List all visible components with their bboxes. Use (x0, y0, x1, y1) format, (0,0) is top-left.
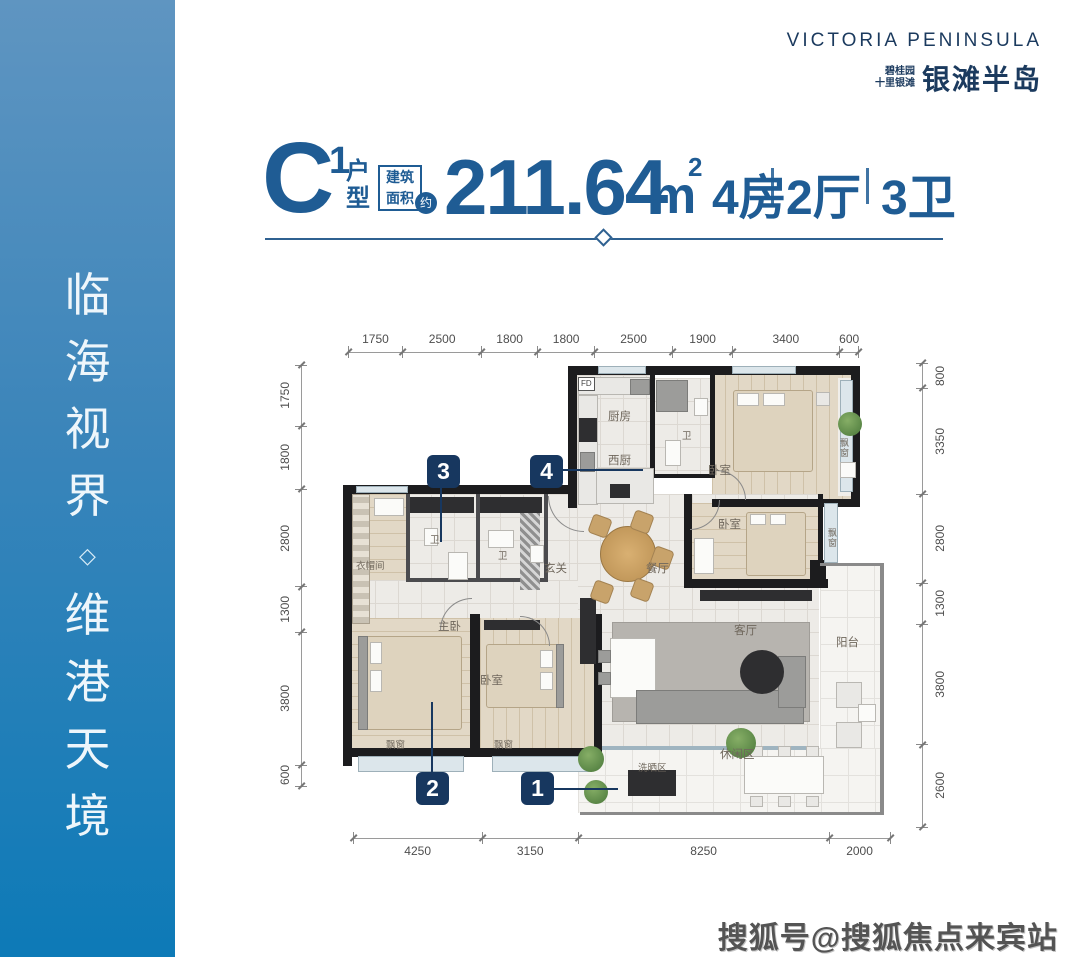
dim-rail-line (353, 838, 890, 839)
shower (656, 380, 688, 412)
window-closet (356, 486, 408, 493)
dim-value: 600 (277, 765, 293, 786)
dim-value: 8250 (578, 844, 829, 858)
room-label-bay-2: 飘窗 (826, 528, 839, 548)
dim-rail-line (301, 365, 302, 786)
desk (694, 538, 714, 574)
dim-value: 3800 (932, 624, 948, 744)
outdoor-chair (806, 746, 819, 757)
dim-value-text: 2800 (278, 525, 292, 552)
room-label-bedroom-1: 卧室 (708, 462, 731, 478)
dim-value-text: 1300 (278, 596, 292, 623)
dim-value: 3400 (732, 332, 839, 346)
pillow (540, 672, 553, 690)
dim-value: 1800 (277, 426, 293, 489)
dim-value-text: 2800 (933, 525, 947, 552)
dim-value: 3150 (482, 844, 578, 858)
dim-value: 1300 (932, 583, 948, 624)
room-label-leisure: 休闲区 (720, 746, 755, 762)
dim-value-text: 600 (278, 765, 292, 785)
pillow (763, 393, 785, 406)
balcony-railing (580, 812, 884, 815)
outdoor-chair (778, 796, 791, 807)
dim-value-text: 1800 (278, 444, 292, 471)
marker-3: 3 (427, 455, 460, 488)
balcony-railing (880, 563, 884, 815)
dim-value: 4250 (353, 844, 482, 858)
marker-2: 2 (416, 772, 449, 805)
leader-3 (440, 488, 442, 542)
room-label-balcony: 阳台 (836, 634, 859, 650)
coffee-table (740, 650, 784, 694)
room-label-bay-master: 飘窗 (386, 737, 405, 751)
wall-segment (343, 485, 352, 766)
room-label-west-kitchen: 西厨 (608, 452, 631, 468)
kitchen-counter (578, 395, 598, 505)
dim-value-text: 800 (933, 366, 947, 386)
wash-basin (530, 545, 544, 563)
cooktop (610, 484, 630, 498)
room-label-bath-2: 卫 (498, 548, 508, 562)
leader-1 (554, 788, 618, 790)
dim-value: 2800 (277, 489, 293, 587)
chair (598, 650, 611, 663)
dim-value: 1900 (673, 332, 733, 346)
plant (578, 746, 604, 772)
room-label-laundry: 洗晒区 (638, 760, 667, 774)
dim-value: 2600 (932, 745, 948, 827)
room-label-bath-top: 卫 (682, 428, 692, 442)
pillow (770, 514, 786, 525)
dim-rail-line (348, 352, 858, 353)
room-label-fd: FD (578, 377, 595, 391)
fridge (630, 379, 650, 395)
toilet (448, 552, 468, 580)
dim-value-text: 2600 (933, 772, 947, 799)
dim-value-text: 1750 (278, 382, 292, 409)
wall-segment (684, 579, 828, 588)
dim-value-text: 1300 (933, 590, 947, 617)
headboard (556, 644, 564, 708)
pillow (540, 650, 553, 668)
outdoor-table (744, 756, 824, 794)
dim-value-text: 3350 (933, 428, 947, 455)
room-label-closet: 衣帽间 (356, 558, 385, 572)
room-label-bath-3: 卫 (430, 532, 440, 546)
wall-segment (650, 375, 655, 478)
leader-4 (563, 469, 643, 471)
side-table (858, 704, 876, 722)
outdoor-chair (778, 746, 791, 757)
dim-value: 1800 (538, 332, 594, 346)
tv-console (700, 590, 812, 601)
dim-value: 3350 (932, 388, 948, 494)
room-label-bay-1: 飘窗 (838, 438, 851, 458)
dim-value: 600 (839, 332, 858, 346)
dim-value: 2000 (829, 844, 890, 858)
leader-2 (431, 702, 433, 772)
nightstand (816, 392, 830, 406)
plant (838, 412, 862, 436)
vanity (374, 498, 404, 516)
window-kitchen (598, 366, 646, 374)
room-label-bay-3: 飘窗 (494, 737, 513, 751)
room-label-dining: 餐厅 (646, 560, 669, 576)
wall-segment (654, 474, 712, 478)
dim-value: 1300 (277, 587, 293, 632)
room-label-bedroom-2: 卧室 (718, 516, 741, 532)
headboard (358, 636, 368, 730)
pillow (737, 393, 759, 406)
room-label-living: 客厅 (734, 622, 757, 638)
dim-value: 1750 (348, 332, 403, 346)
window-bedroom-1 (732, 366, 796, 374)
dim-value: 1800 (481, 332, 537, 346)
outdoor-chair (750, 796, 763, 807)
study-table (610, 638, 656, 698)
pillow (750, 514, 766, 525)
chair (598, 672, 611, 685)
dim-value-text: 3800 (278, 685, 292, 712)
bay-window-master (358, 756, 464, 772)
toilet (665, 440, 681, 466)
balcony-railing (820, 563, 882, 566)
watermark-text: 搜狐号@搜狐焦点来宾站 (718, 913, 1058, 957)
toilet (488, 530, 514, 548)
dim-value: 800 (932, 363, 948, 388)
plant (584, 780, 608, 804)
page: { "sidebar": { "chars": ["临","海","视","界"… (0, 0, 1080, 957)
bay-window-bedroom-3 (492, 756, 592, 772)
pillow (370, 642, 382, 664)
room-label-kitchen: 厨房 (608, 408, 631, 424)
stove (579, 418, 597, 442)
room-label-master: 主卧 (438, 618, 461, 634)
marker-1: 1 (521, 772, 554, 805)
room-label-bedroom-3: 卧室 (480, 672, 503, 688)
dim-value: 2500 (594, 332, 672, 346)
bay-stool (840, 462, 856, 478)
bath-cabinet (480, 497, 542, 513)
wash-basin (694, 398, 708, 416)
wall-segment (470, 614, 480, 757)
hall-cabinet (580, 598, 596, 664)
dim-rail-line (922, 363, 923, 827)
bath-cabinet (410, 497, 474, 513)
pillow (370, 670, 382, 692)
outdoor-chair (806, 796, 819, 807)
dim-value: 2500 (403, 332, 481, 346)
dim-value-text: 3800 (933, 671, 947, 698)
dim-value: 1750 (277, 365, 293, 426)
floorplan-canvas: FD厨房西厨卫卧室飘窗卧室飘窗衣帽间卫卫玄关餐厅客厅主卧飘窗卧室飘窗阳台休闲区洗… (0, 0, 1080, 957)
dim-value: 3800 (277, 632, 293, 765)
marker-4: 4 (530, 455, 563, 488)
room-label-foyer: 玄关 (544, 560, 567, 576)
dim-value: 2800 (932, 494, 948, 583)
lounge-chair (836, 722, 862, 748)
